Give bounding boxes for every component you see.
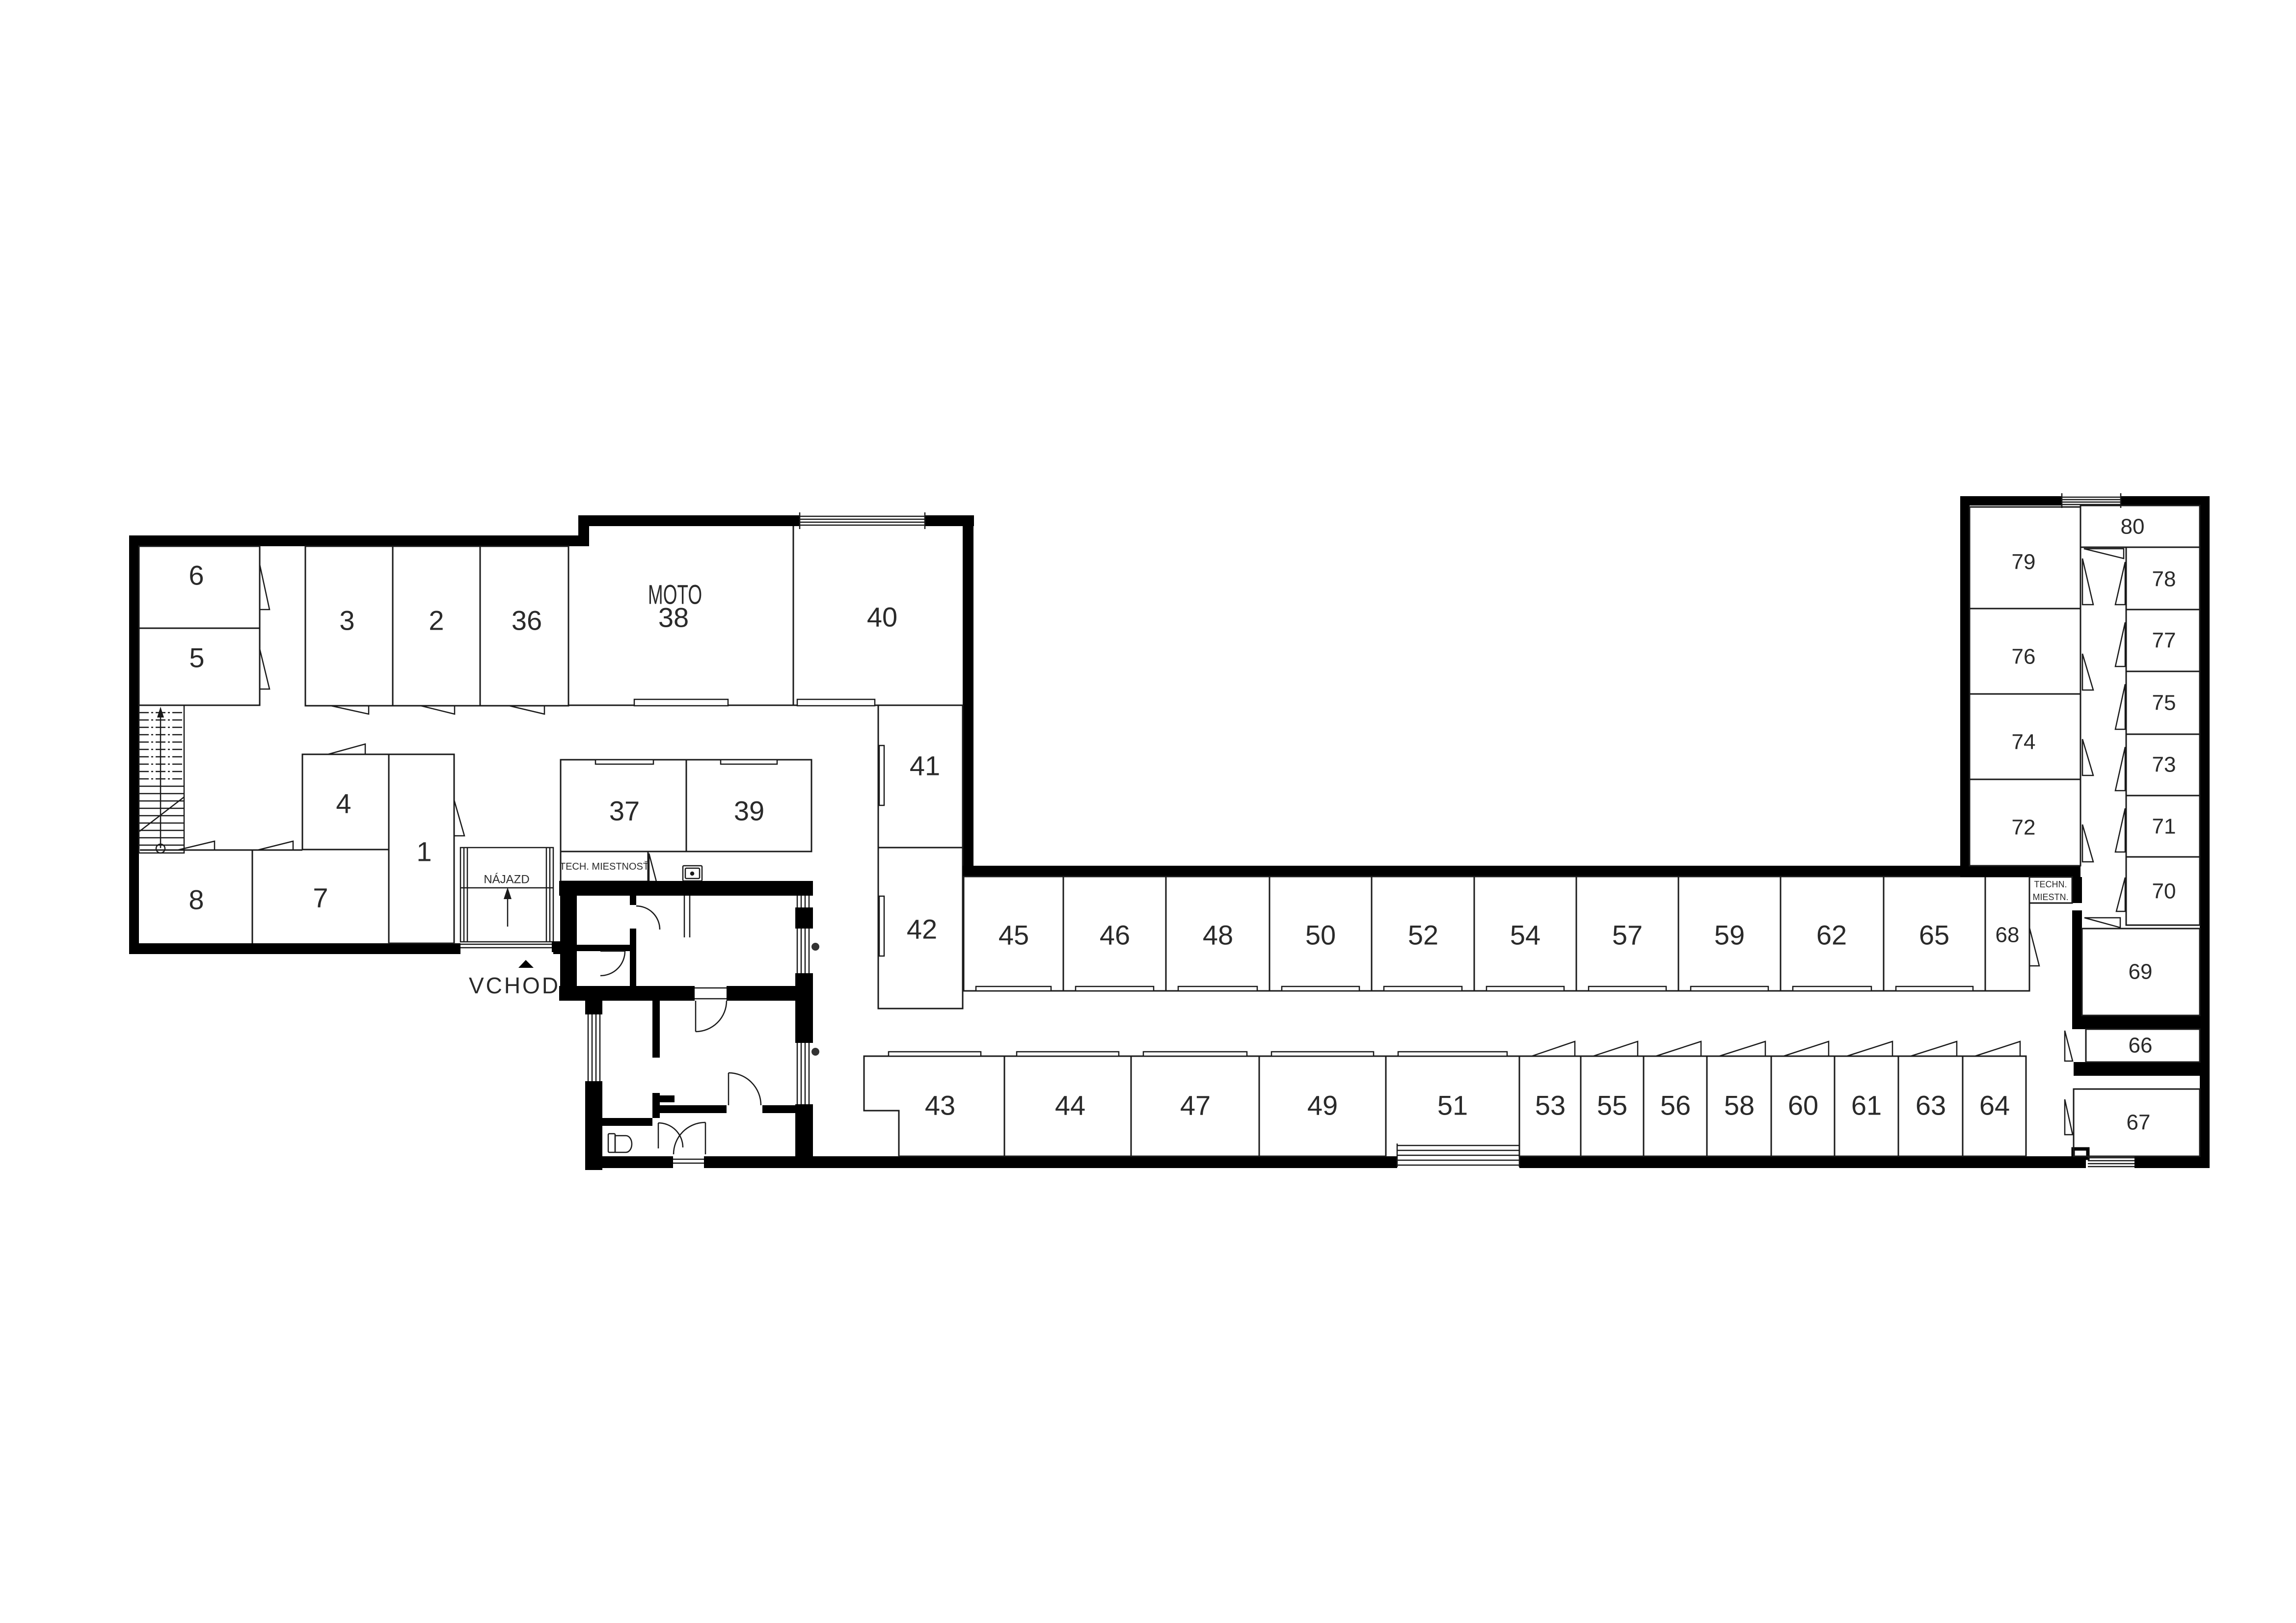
- svg-text:53: 53: [1535, 1090, 1566, 1121]
- svg-text:45: 45: [999, 920, 1029, 951]
- svg-text:MIESTN.: MIESTN.: [2032, 892, 2068, 902]
- svg-text:6: 6: [189, 560, 204, 591]
- svg-text:56: 56: [1660, 1090, 1691, 1121]
- svg-text:38: 38: [658, 602, 689, 633]
- svg-text:36: 36: [512, 605, 542, 636]
- svg-text:4: 4: [336, 788, 351, 819]
- svg-text:46: 46: [1100, 920, 1130, 951]
- svg-text:60: 60: [1788, 1090, 1818, 1121]
- svg-text:TECHN.: TECHN.: [2034, 879, 2067, 889]
- svg-text:54: 54: [1510, 920, 1540, 951]
- svg-text:50: 50: [1305, 920, 1336, 951]
- svg-text:51: 51: [1437, 1090, 1468, 1121]
- svg-text:62: 62: [1816, 920, 1847, 951]
- svg-text:76: 76: [2012, 645, 2036, 669]
- svg-text:63: 63: [1916, 1090, 1946, 1121]
- svg-text:72: 72: [2012, 816, 2036, 840]
- svg-text:61: 61: [1851, 1090, 1882, 1121]
- svg-text:40: 40: [867, 602, 897, 633]
- svg-text:70: 70: [2152, 879, 2176, 904]
- svg-text:3: 3: [339, 605, 354, 636]
- svg-text:7: 7: [313, 882, 328, 913]
- svg-text:43: 43: [925, 1090, 955, 1121]
- svg-text:49: 49: [1307, 1090, 1338, 1121]
- svg-text:75: 75: [2152, 691, 2176, 715]
- svg-text:47: 47: [1180, 1090, 1211, 1121]
- svg-text:73: 73: [2152, 753, 2176, 777]
- svg-text:59: 59: [1714, 920, 1745, 951]
- svg-text:80: 80: [2121, 515, 2145, 539]
- svg-text:1: 1: [416, 836, 432, 867]
- svg-text:42: 42: [907, 914, 937, 945]
- svg-text:79: 79: [2012, 550, 2036, 574]
- svg-text:8: 8: [189, 884, 204, 915]
- svg-text:58: 58: [1724, 1090, 1755, 1121]
- svg-text:39: 39: [734, 796, 764, 826]
- svg-text:52: 52: [1408, 920, 1438, 951]
- svg-text:5: 5: [189, 642, 204, 673]
- svg-text:66: 66: [2129, 1034, 2153, 1058]
- svg-text:NÁJAZD: NÁJAZD: [484, 873, 529, 886]
- svg-text:48: 48: [1203, 920, 1233, 951]
- svg-text:37: 37: [609, 796, 640, 826]
- svg-text:VCHOD: VCHOD: [469, 973, 560, 998]
- svg-text:TECH. MIESTNOSŤ: TECH. MIESTNOSŤ: [560, 861, 649, 872]
- svg-text:64: 64: [1979, 1090, 2010, 1121]
- svg-text:71: 71: [2152, 815, 2176, 839]
- svg-text:2: 2: [429, 605, 444, 636]
- svg-text:78: 78: [2152, 567, 2176, 591]
- svg-text:57: 57: [1612, 920, 1643, 951]
- svg-text:55: 55: [1597, 1090, 1627, 1121]
- svg-text:74: 74: [2012, 730, 2036, 754]
- svg-text:77: 77: [2152, 629, 2176, 653]
- svg-text:67: 67: [2127, 1111, 2151, 1135]
- svg-text:44: 44: [1055, 1090, 1085, 1121]
- svg-text:68: 68: [1996, 923, 2020, 947]
- svg-text:69: 69: [2129, 960, 2153, 984]
- svg-text:65: 65: [1919, 920, 1949, 951]
- svg-text:41: 41: [910, 750, 940, 781]
